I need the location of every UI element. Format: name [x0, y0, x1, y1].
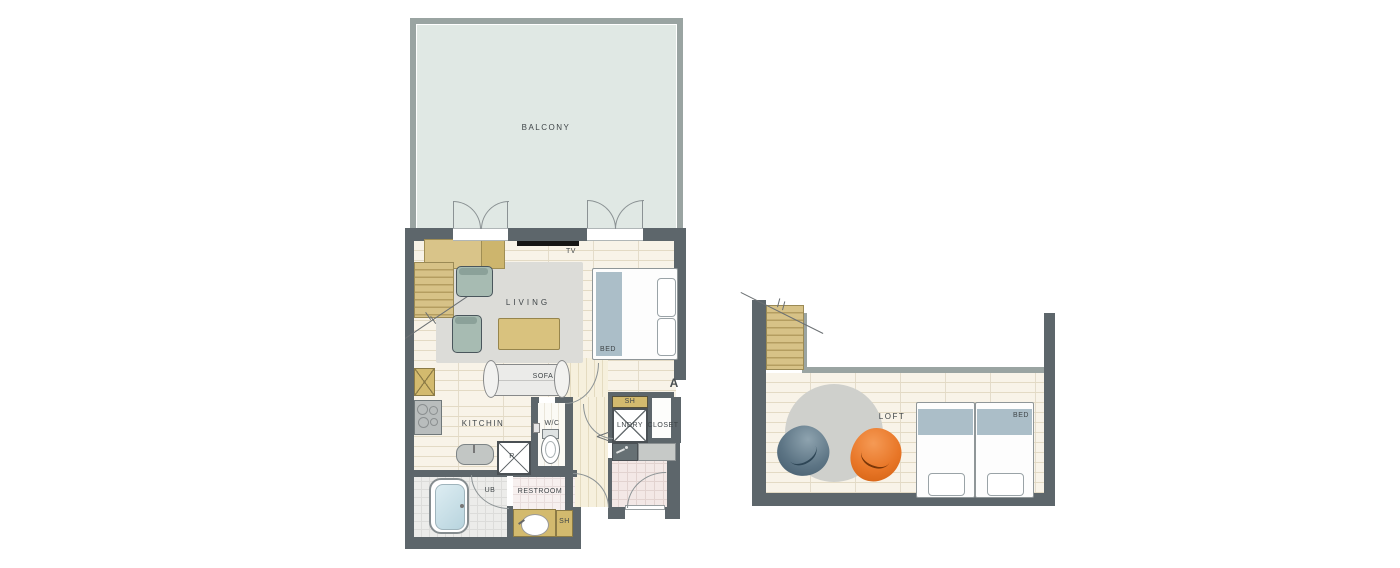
restroom-label: RESTROOM [504, 486, 576, 497]
living-label: LIVING [478, 297, 578, 308]
door-leaf [507, 201, 508, 228]
pillow [657, 318, 676, 356]
loft-bed [916, 402, 975, 498]
armchair-back [455, 317, 477, 324]
armchair-back [459, 268, 488, 275]
door-opening [539, 397, 555, 403]
kitchen-sink [456, 444, 494, 465]
sofa-arm [483, 360, 499, 398]
kitchen-label: KITCHIN [441, 418, 525, 429]
wc-label: W/C [531, 418, 573, 429]
loft-bed-label: BED [995, 410, 1047, 421]
unit-bath-label: UB [477, 485, 503, 496]
washbasin-counter [513, 509, 556, 537]
wall [565, 458, 573, 510]
wall [405, 228, 414, 549]
loft-railing [802, 367, 1044, 373]
shelf-label: SH [612, 396, 648, 407]
washbasin [521, 514, 549, 536]
shoe-cabinet [612, 443, 638, 461]
wall [405, 537, 581, 549]
bed-label: BED [588, 344, 628, 355]
loft-label: LOFT [862, 411, 922, 422]
shelf-label: SH [556, 516, 573, 527]
door-sill [453, 228, 508, 241]
door-leaf [453, 201, 454, 228]
pillow [987, 473, 1024, 496]
fridge-label: R [497, 451, 527, 462]
armchair [456, 266, 493, 297]
tv-label: TV [557, 246, 585, 257]
wall [573, 507, 581, 539]
section-marker: A [662, 378, 686, 389]
armchair [452, 315, 482, 353]
door-leaf [587, 200, 588, 228]
pillow [657, 278, 676, 317]
pantry-shelf [414, 368, 435, 396]
toilet [541, 429, 558, 463]
stove [414, 400, 442, 435]
closet-floor [652, 398, 671, 438]
stairs-upper-storage [481, 237, 505, 269]
door-leaf [642, 200, 643, 228]
coffee-table [498, 318, 560, 350]
pillow [928, 473, 965, 496]
balcony-label: BALCONY [486, 122, 606, 133]
wall [608, 458, 612, 507]
entrance-step [638, 443, 676, 461]
bathtub [429, 478, 469, 534]
closet-label: CLOSET [645, 420, 681, 431]
sofa-label: SOFA [521, 371, 565, 382]
wall [531, 397, 538, 472]
faucet-icon [616, 448, 625, 454]
laundry-label: LNDRY [610, 420, 650, 431]
door-sill [587, 228, 643, 241]
wall [752, 300, 766, 506]
floor-plan: BALCONY TV LIVING BED SOFA KITCHIN R W/C… [0, 0, 1400, 568]
bed-blanket [918, 409, 973, 435]
